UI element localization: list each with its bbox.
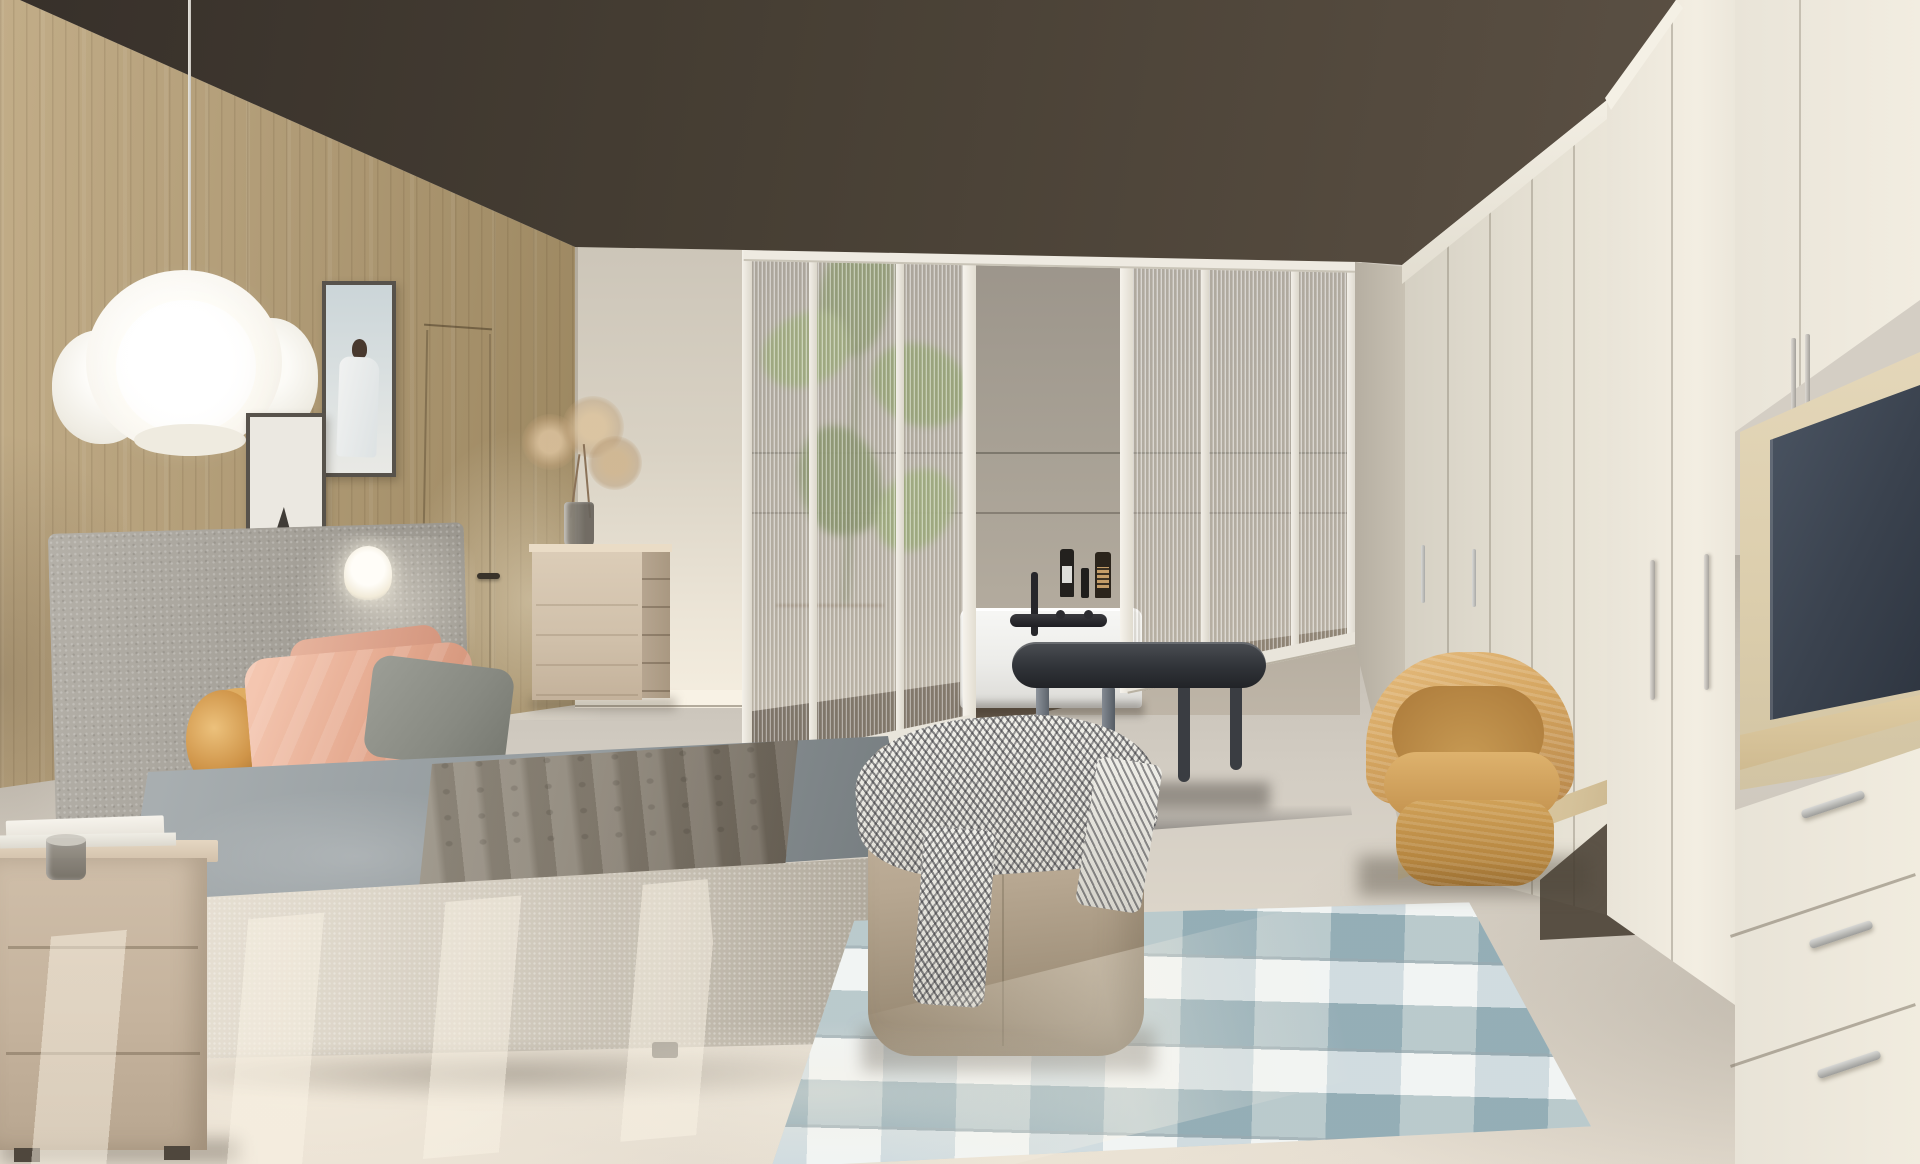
partition-mullion [1201,259,1209,675]
tall-wardrobe-door-seam [1671,0,1673,1015]
dresser-front-seams [536,576,638,696]
partition-mullion [1291,261,1299,655]
bedroom-scene [0,0,1920,1164]
bottle-amber-label [1097,567,1109,588]
wardrobe-bar-handle [1650,560,1655,700]
armchair [1366,652,1578,890]
flower-puff [588,436,642,490]
dried-flowers [522,396,642,518]
partition-mullion [809,252,817,759]
hidden-door-right-seam [489,334,491,694]
door-handle [477,573,500,579]
glass-cup-rim [46,834,86,846]
tv-upper-door-seam [1799,0,1801,440]
lamp-ruffle [134,424,246,456]
table-lamp [344,546,392,600]
bottle-small [1081,568,1089,598]
blanket-tufting [427,736,762,863]
partition-mullion [896,253,904,740]
bottle-label [1062,566,1072,583]
faucet-knob [1056,610,1065,619]
partition-doorjamb-left [963,254,976,728]
fluted-glass-left [746,248,975,778]
armchair-base [1396,800,1554,886]
tv [1770,380,1920,725]
bench-leg [1178,680,1190,782]
pendant-cord [188,0,191,284]
fluted-glass-right [1125,255,1360,695]
herringbone-throw-tail [912,826,996,1009]
door-lock [483,589,490,598]
lamp-glow-core [116,300,256,434]
bench [1012,642,1266,688]
faucet-knob [1084,610,1093,619]
partition-doorjamb-right [1120,257,1133,693]
dresser-side-seams [640,552,670,698]
tall-wardrobe [1607,0,1735,1015]
vase [564,502,594,550]
wardrobe-handle [1421,545,1425,603]
portrait-figure-robe [336,356,379,457]
wardrobe-bar-handle [1704,554,1709,690]
partition-mullion [742,250,752,776]
bench-leg [1230,674,1242,770]
wardrobe-handle [1472,549,1476,607]
dresser-top [529,544,672,552]
artwork-portrait [322,281,396,477]
